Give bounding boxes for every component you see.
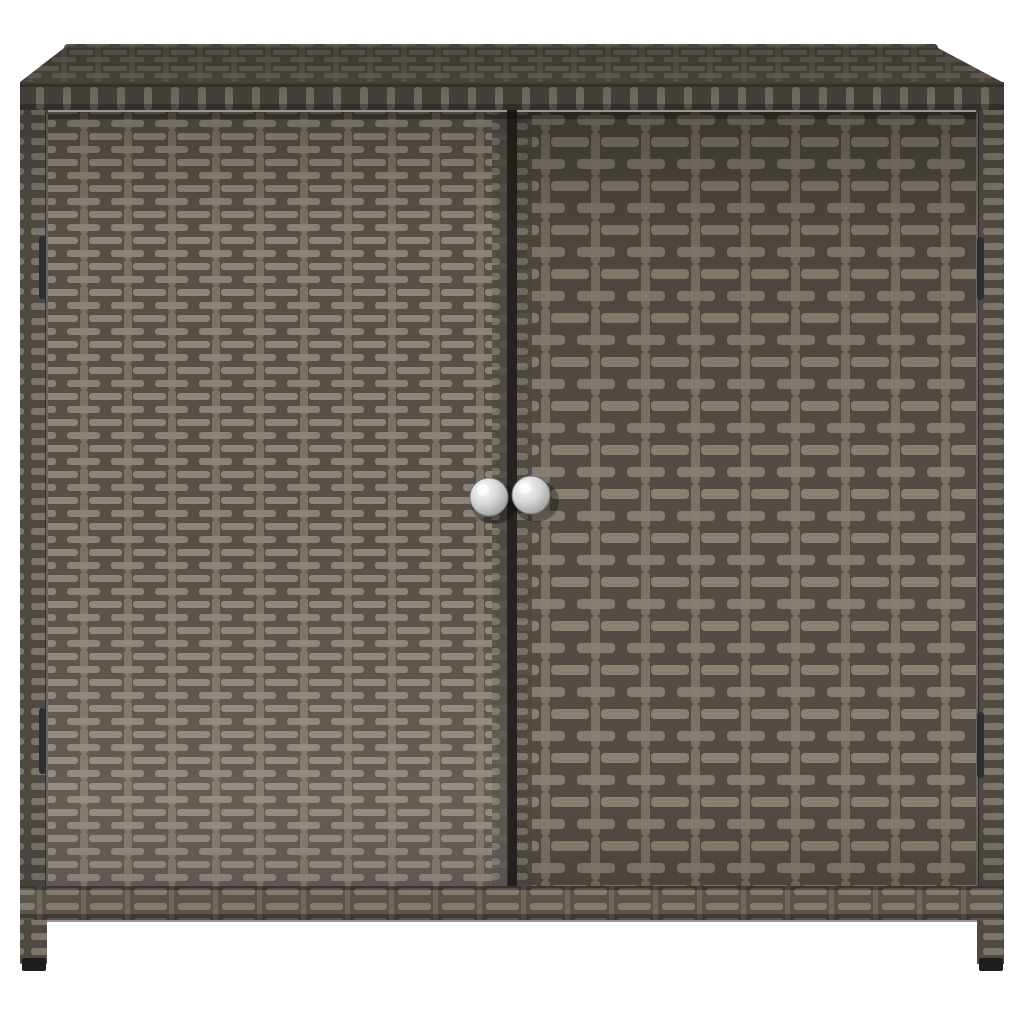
hinge-bottom-right	[977, 712, 984, 778]
bottom-rail-top-seam	[20, 886, 1004, 890]
hinge-top-left	[39, 236, 46, 299]
leg-left	[20, 920, 47, 964]
hinge-top-right	[977, 237, 984, 300]
foot-cap-left	[22, 958, 46, 971]
foot-cap-right	[979, 958, 1003, 971]
knob-right-face	[512, 476, 550, 514]
knob-left-face	[470, 478, 508, 516]
bottom-rail-bottom-edge	[20, 914, 1004, 922]
hinge-bottom-left	[39, 708, 46, 774]
knob-right-highlight	[519, 482, 531, 494]
garden-storage-cabinet-image	[0, 0, 1024, 1024]
storage-cabinet	[20, 44, 1004, 971]
knob-left-highlight	[477, 484, 489, 496]
product-photo	[0, 0, 1024, 1024]
leg-right	[977, 920, 1004, 964]
lid-shading	[20, 48, 1002, 82]
